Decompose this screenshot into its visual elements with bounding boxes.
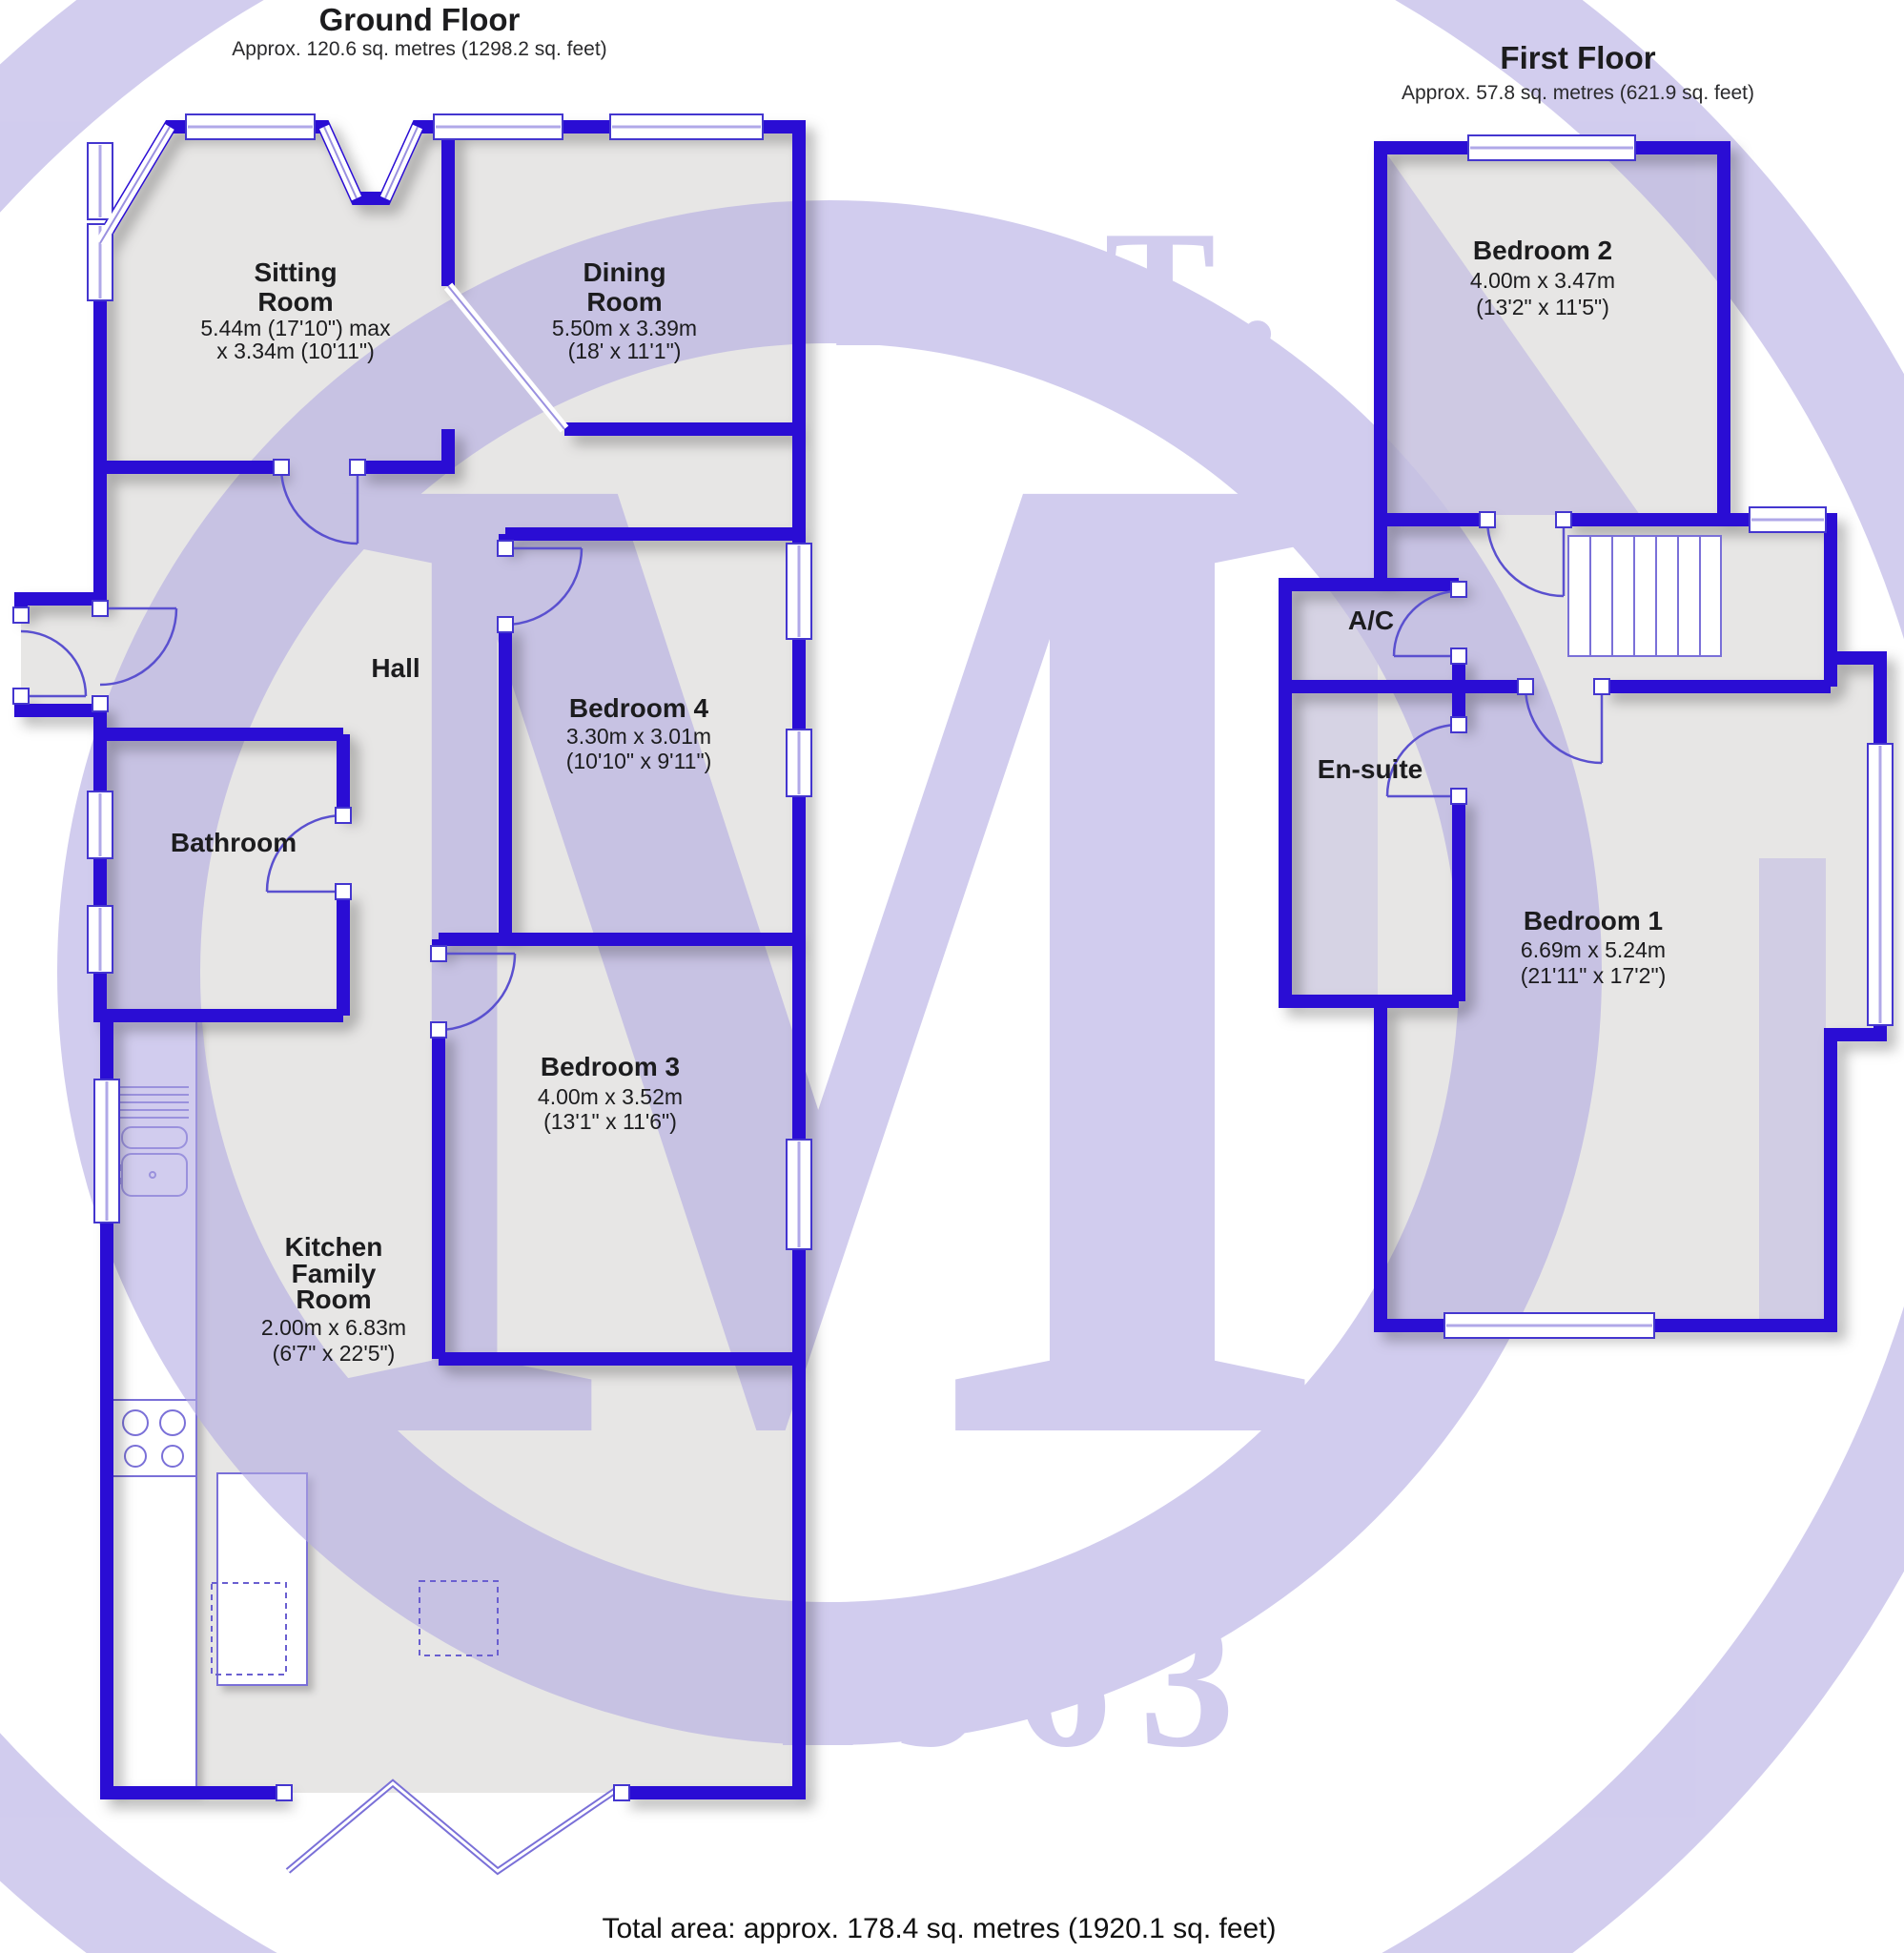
window-bedroom4-right-2	[787, 730, 811, 796]
dining-dim-1: 5.50m x 3.39m	[552, 316, 697, 340]
dining-name-1: Dining	[583, 257, 665, 287]
watermark-patch-bedroom1	[1759, 858, 1826, 1321]
kitchen-dim-2: (6'7" x 22'5")	[273, 1341, 396, 1366]
room-label-bedroom1: Bedroom 1 6.69m x 5.24m (21'11" x 17'2")	[1521, 906, 1667, 988]
window-bedroom1-bottom	[1444, 1313, 1654, 1338]
watermark-monogram: M	[323, 156, 1336, 1740]
bedroom1-dim-2: (21'11" x 17'2")	[1521, 963, 1667, 988]
room-label-bedroom4: Bedroom 4 3.30m x 3.01m (10'10" x 9'11")	[566, 693, 712, 773]
kitchen-name-1: Kitchen	[285, 1232, 383, 1262]
room-label-bedroom2: Bedroom 2 4.00m x 3.47m (13'2" x 11'5")	[1470, 236, 1615, 319]
kitchen-dim-1: 2.00m x 6.83m	[261, 1315, 406, 1340]
window-bedroom4-right	[787, 544, 811, 639]
window-bathroom-left-1	[88, 791, 113, 858]
bedroom4-name: Bedroom 4	[569, 693, 709, 723]
sitting-dim-1: 5.44m (17'10") max	[200, 316, 391, 340]
dining-dim-2: (18' x 11'1")	[568, 339, 682, 363]
window-bedroom2-top	[1468, 135, 1635, 160]
window-bathroom-left-2	[88, 906, 113, 973]
watermark-year: 1963	[768, 1576, 1263, 1787]
first-floor-subtitle: Approx. 57.8 sq. metres (621.9 sq. feet)	[1402, 82, 1754, 104]
bifold-doors	[288, 1783, 618, 1871]
floorplan-canvas: M EST. 1963	[0, 0, 1904, 1953]
watermark-patch-ensuite	[1290, 589, 1378, 995]
first-floor-header: First Floor Approx. 57.8 sq. metres (621…	[1402, 40, 1754, 104]
bedroom2-name: Bedroom 2	[1473, 236, 1612, 265]
first-floor-title: First Floor	[1500, 40, 1655, 75]
stairwell	[1568, 536, 1721, 656]
window-sitting-bay-top	[186, 114, 315, 139]
bedroom2-dim-1: 4.00m x 3.47m	[1470, 268, 1615, 293]
sitting-name-1: Sitting	[254, 257, 337, 287]
kitchen-name-3: Room	[296, 1285, 371, 1314]
bedroom3-name: Bedroom 3	[541, 1052, 680, 1081]
total-area-text: Total area: approx. 178.4 sq. metres (19…	[602, 1913, 1276, 1944]
window-bedroom3-right	[787, 1140, 811, 1249]
ensuite-label: En-suite	[1318, 754, 1423, 784]
window-dining-top-right	[610, 114, 763, 139]
sitting-name-2: Room	[257, 287, 333, 317]
window-sitting-left-1	[88, 143, 113, 219]
window-dining-bay-top	[434, 114, 563, 139]
bedroom1-name: Bedroom 1	[1524, 906, 1663, 935]
ground-floor-subtitle: Approx. 120.6 sq. metres (1298.2 sq. fee…	[232, 38, 606, 60]
window-kitchen-left	[94, 1079, 119, 1223]
bedroom2-dim-2: (13'2" x 11'5")	[1476, 295, 1609, 319]
bedroom4-dim-1: 3.30m x 3.01m	[566, 724, 711, 749]
bedroom3-dim-1: 4.00m x 3.52m	[538, 1084, 683, 1109]
bathroom-label: Bathroom	[171, 828, 297, 857]
ground-floor-title: Ground Floor	[319, 2, 521, 37]
hall-label: Hall	[371, 653, 420, 683]
kitchen-hob	[113, 1400, 196, 1476]
dining-name-2: Room	[586, 287, 662, 317]
bedroom4-dim-2: (10'10" x 9'11")	[566, 749, 712, 773]
window-landing-right	[1750, 507, 1826, 532]
bedroom1-dim-1: 6.69m x 5.24m	[1521, 937, 1666, 962]
bedroom3-dim-2: (13'1" x 11'6")	[543, 1109, 677, 1134]
window-bedroom1-right	[1868, 744, 1893, 1025]
ground-floor-header: Ground Floor Approx. 120.6 sq. metres (1…	[232, 2, 606, 60]
room-label-bedroom3: Bedroom 3 4.00m x 3.52m (13'1" x 11'6")	[538, 1052, 683, 1134]
watermark-est: EST.	[833, 196, 1312, 381]
ac-label: A/C	[1348, 606, 1394, 635]
sitting-dim-2: x 3.34m (10'11")	[216, 339, 375, 363]
